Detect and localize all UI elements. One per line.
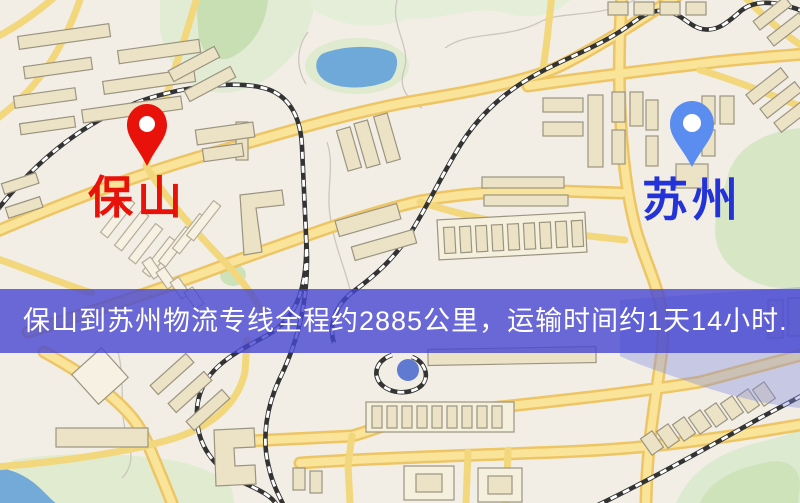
origin-pin-icon[interactable] <box>125 102 169 168</box>
pond <box>397 359 419 381</box>
base-map <box>0 0 800 503</box>
route-info-text: 保山到苏州物流专线全程约2885公里，运输时间约1天14小时. <box>23 305 788 337</box>
map-canvas[interactable]: 保山 苏州 保山到苏州物流专线全程约2885公里，运输时间约1天14小时. <box>0 0 800 503</box>
lake <box>316 47 397 88</box>
route-info-banner: 保山到苏州物流专线全程约2885公里，运输时间约1天14小时. <box>0 289 800 353</box>
destination-pin-icon[interactable] <box>666 99 718 169</box>
origin-label: 保山 <box>88 176 186 221</box>
destination-label: 苏州 <box>642 178 742 224</box>
